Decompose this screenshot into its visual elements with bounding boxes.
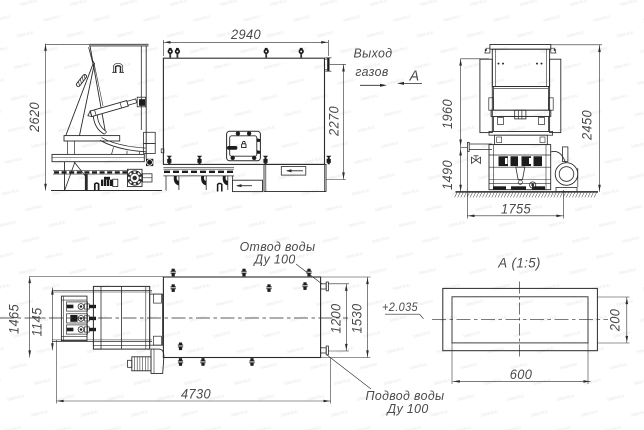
svg-text:1755: 1755 [501, 201, 531, 216]
svg-text:А (1:5): А (1:5) [497, 255, 541, 270]
svg-text:+2.035: +2.035 [382, 302, 418, 314]
svg-text:1960: 1960 [440, 99, 455, 129]
svg-text:200: 200 [607, 308, 622, 332]
svg-text:Ду 100: Ду 100 [252, 252, 295, 266]
svg-text:Ду 100: Ду 100 [385, 402, 428, 416]
svg-text:1530: 1530 [349, 303, 364, 333]
svg-text:газов: газов [355, 65, 388, 79]
svg-text:2270: 2270 [326, 106, 341, 137]
svg-text:2940: 2940 [230, 27, 261, 42]
svg-text:2620: 2620 [27, 102, 42, 133]
svg-text:1465: 1465 [6, 304, 21, 334]
svg-text:1145: 1145 [29, 307, 44, 336]
svg-text:А: А [409, 68, 420, 84]
svg-text:600: 600 [510, 367, 533, 382]
svg-text:1490: 1490 [440, 160, 455, 190]
svg-text:1200: 1200 [328, 303, 343, 333]
svg-text:4730: 4730 [181, 386, 211, 401]
svg-text:2450: 2450 [579, 110, 594, 141]
svg-text:Выход: Выход [354, 46, 393, 60]
